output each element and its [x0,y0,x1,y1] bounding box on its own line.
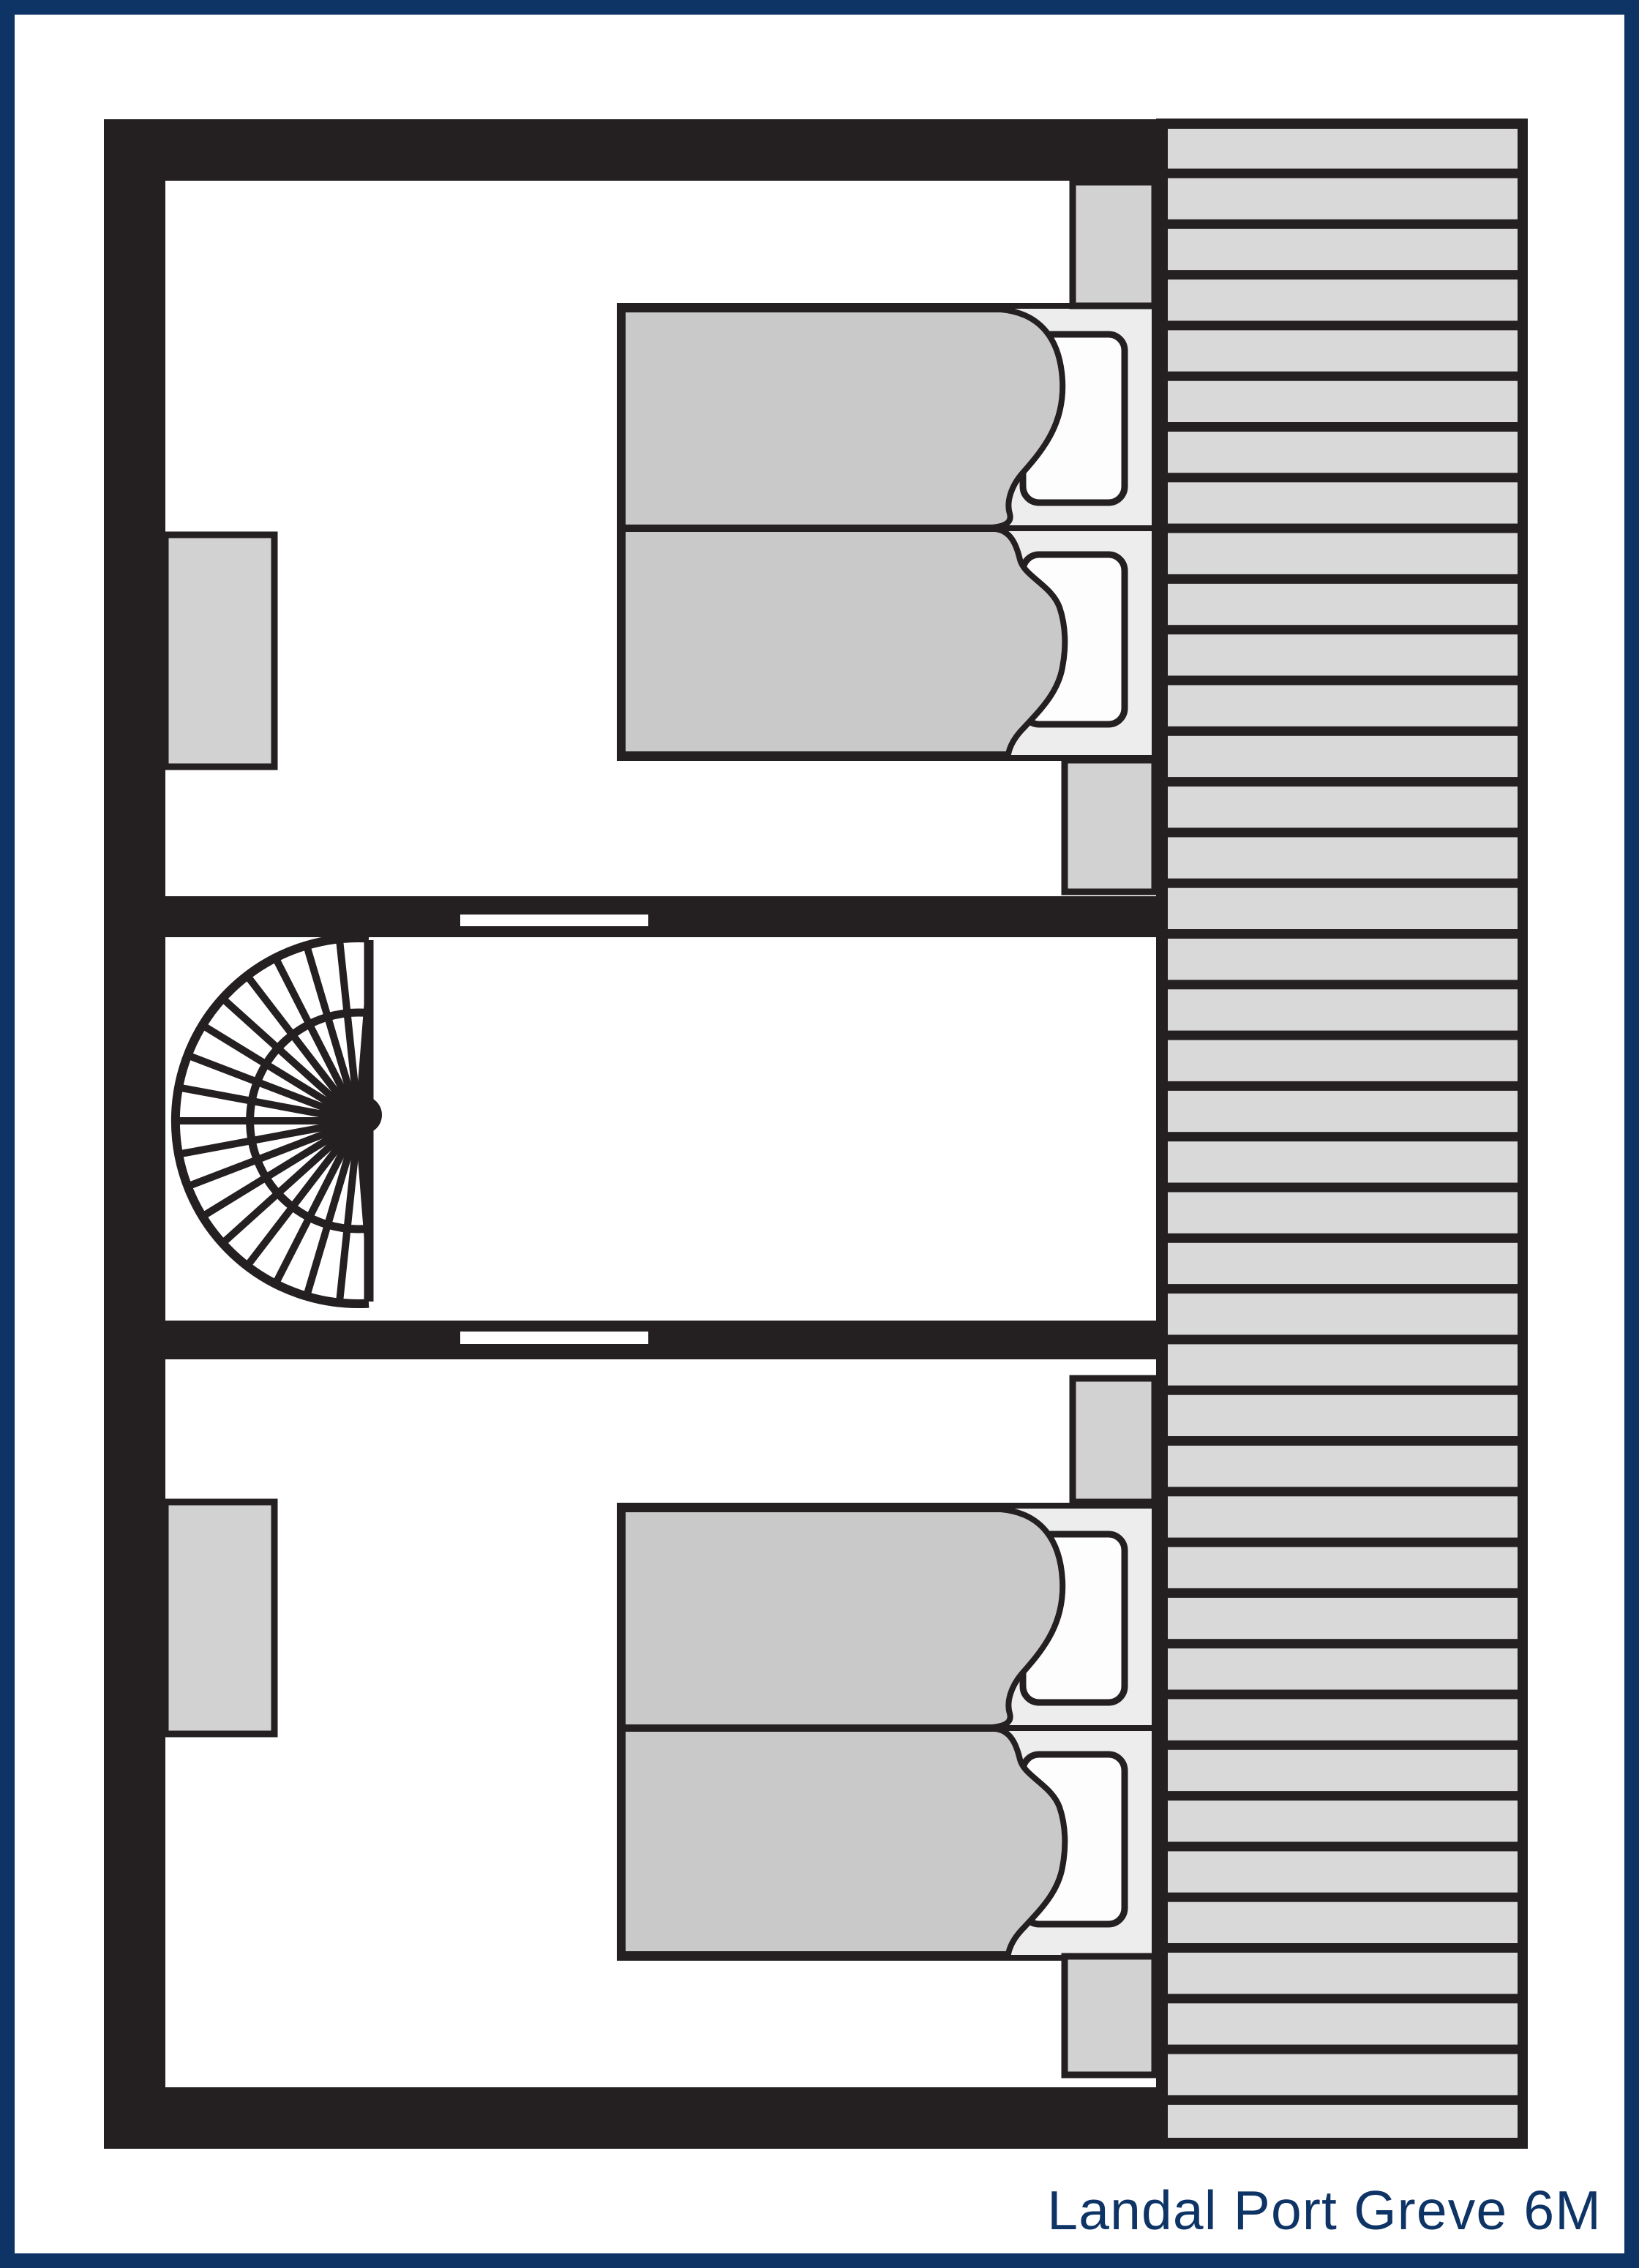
svg-text:Landal Port Greve 6M: Landal Port Greve 6M [1047,2179,1602,2241]
